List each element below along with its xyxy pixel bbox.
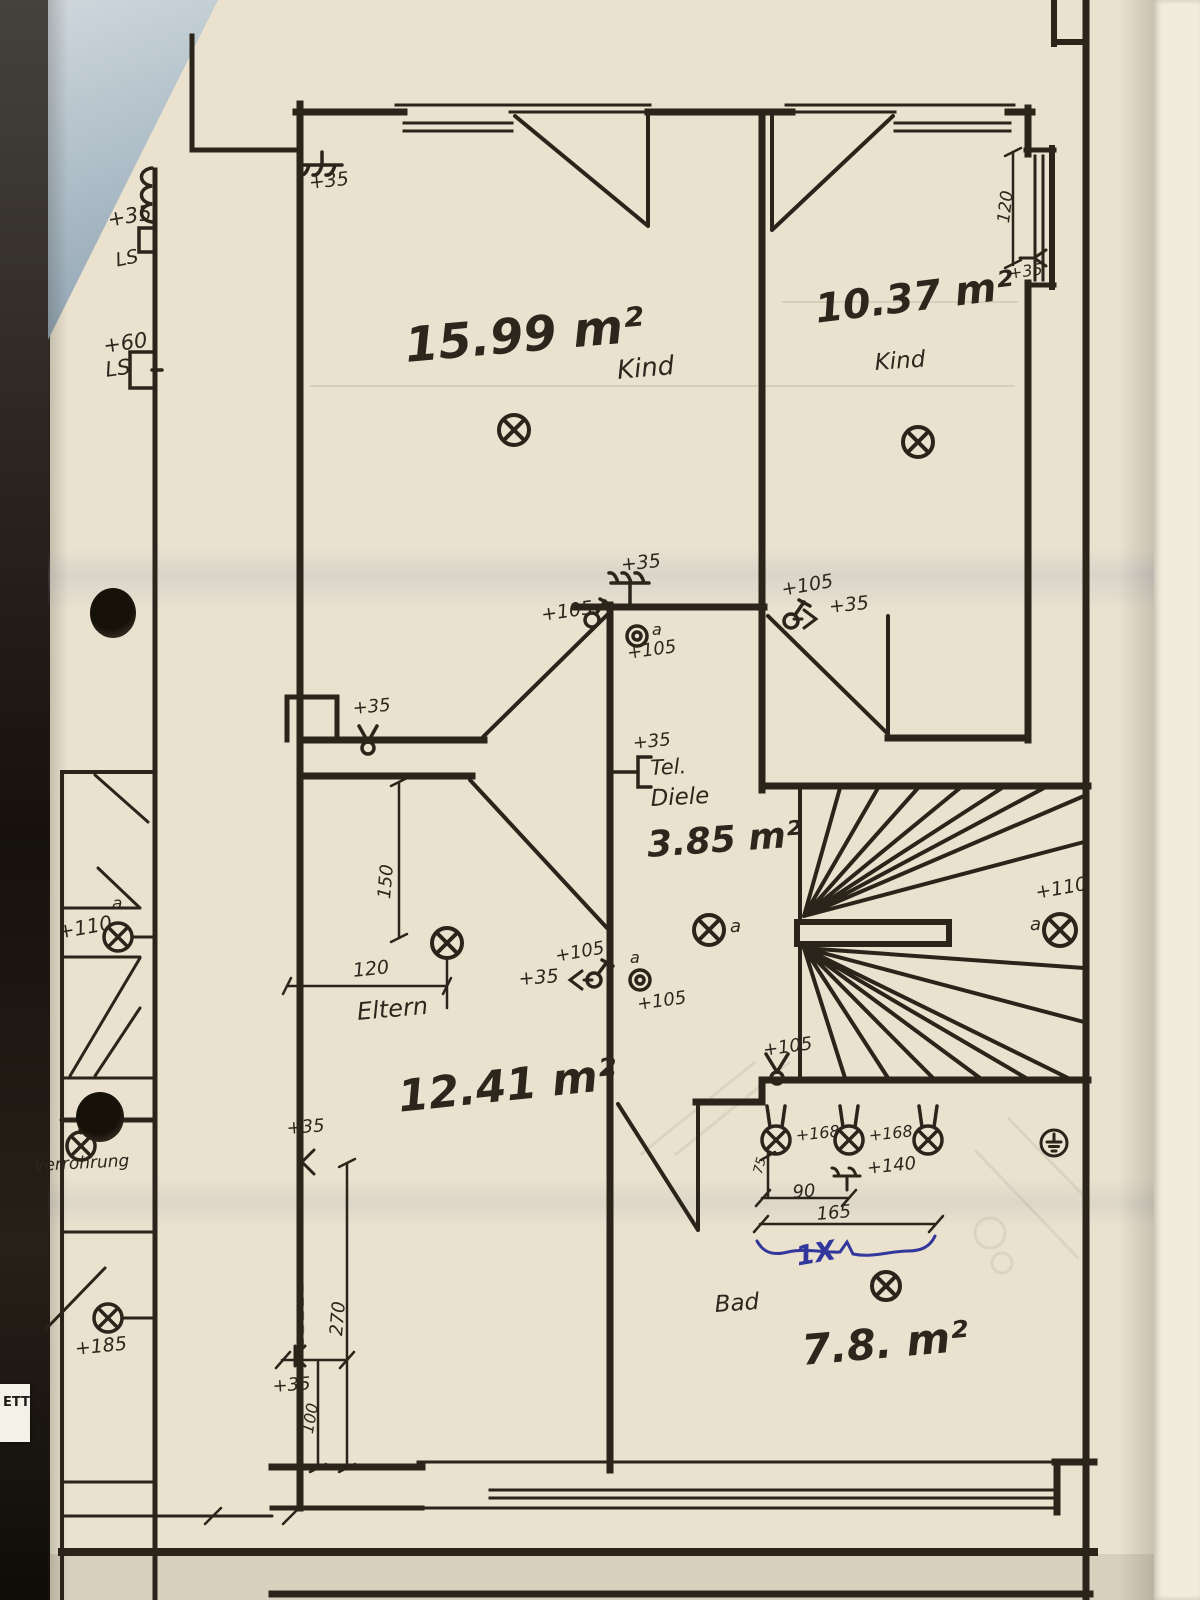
annotation-layer: 15.99 m² Kind 10.37 m² Kind Tel. Diele 3… xyxy=(0,0,1200,1600)
height-35-left-wall: +35 xyxy=(106,202,153,230)
height-110-stairs: +110 xyxy=(1034,875,1089,903)
height-35-niche: +35 xyxy=(352,697,391,718)
floor-plan-photo: 15.99 m² Kind 10.37 m² Kind Tel. Diele 3… xyxy=(0,0,1200,1600)
punch-hole-bottom xyxy=(76,1092,124,1142)
height-105-eltern-switch: +105 xyxy=(554,939,606,965)
height-35-outlet-right: +35 xyxy=(828,594,870,617)
dim-270-eltern: 270 xyxy=(328,1301,349,1337)
ink-quantity-note: 1X xyxy=(794,1237,838,1270)
height-35-eltern-switch: +35 xyxy=(518,967,559,989)
height-105-switch-right: +105 xyxy=(780,572,835,600)
dim-165-bad: 165 xyxy=(816,1203,852,1224)
height-105-switch-left: +105 xyxy=(540,599,594,625)
height-110-left: +110 xyxy=(56,912,114,941)
height-35-kind-left-top: +35 xyxy=(308,170,350,193)
height-35-diele-top: +35 xyxy=(620,552,662,575)
height-35-tel: +35 xyxy=(632,731,672,753)
punch-hole-top xyxy=(90,588,136,638)
tel-label: Tel. xyxy=(650,756,687,779)
circuit-a-left-light: a xyxy=(112,896,122,913)
height-35-window-right: +35 xyxy=(1008,261,1044,282)
ls-upper: LS xyxy=(114,247,140,270)
dim-75-bad: 75 xyxy=(752,1156,769,1175)
room-label-kind-right: Kind xyxy=(874,348,926,374)
circuit-a-diele-light: a xyxy=(730,918,741,936)
height-35-eltern-wall: +35 xyxy=(286,1117,325,1138)
dim-120-eltern: 120 xyxy=(352,958,390,981)
area-label-bad: 7.8. m² xyxy=(800,1315,970,1371)
ls-lower: LS xyxy=(104,357,132,381)
height-105-stairs-switch: +105 xyxy=(762,1035,813,1060)
height-168-a: +168 xyxy=(795,1123,840,1144)
circuit-a-socket-top: a xyxy=(652,622,662,638)
height-105-socket-top: +105 xyxy=(626,638,677,663)
height-185-left: +185 xyxy=(74,1335,128,1359)
room-label-kind-left: Kind xyxy=(616,353,675,384)
height-168-b: +168 xyxy=(868,1123,913,1144)
circuit-a-socket-mid: a xyxy=(630,950,640,966)
room-label-bad: Bad xyxy=(714,1291,760,1317)
height-105-socket-mid: +105 xyxy=(636,989,687,1014)
area-label-kind-left: 15.99 m² xyxy=(403,301,646,370)
height-60-left-wall: +60 xyxy=(102,330,149,357)
dim-150-eltern: 150 xyxy=(376,864,397,900)
verrohrung-note: verrohrung xyxy=(34,1153,130,1175)
circuit-a-stairs-light: a xyxy=(1030,916,1041,934)
room-label-diele: Diele xyxy=(650,785,710,811)
area-label-eltern: 12.41 m² xyxy=(396,1053,619,1120)
height-140: +140 xyxy=(866,1155,917,1178)
height-35-dim-bottom: +35 xyxy=(272,1375,311,1396)
photo-side-tab xyxy=(0,1384,30,1442)
room-label-eltern: Eltern xyxy=(356,994,429,1024)
photo-side-tab-text: ETT xyxy=(3,1396,30,1409)
area-label-kind-right: 10.37 m² xyxy=(813,266,1016,330)
area-label-diele: 3.85 m² xyxy=(646,817,803,864)
dim-100-eltern: 100 xyxy=(300,1402,321,1435)
dim-90-bad: 90 xyxy=(792,1182,816,1202)
dim-120-window-right: 120 xyxy=(996,190,1017,224)
